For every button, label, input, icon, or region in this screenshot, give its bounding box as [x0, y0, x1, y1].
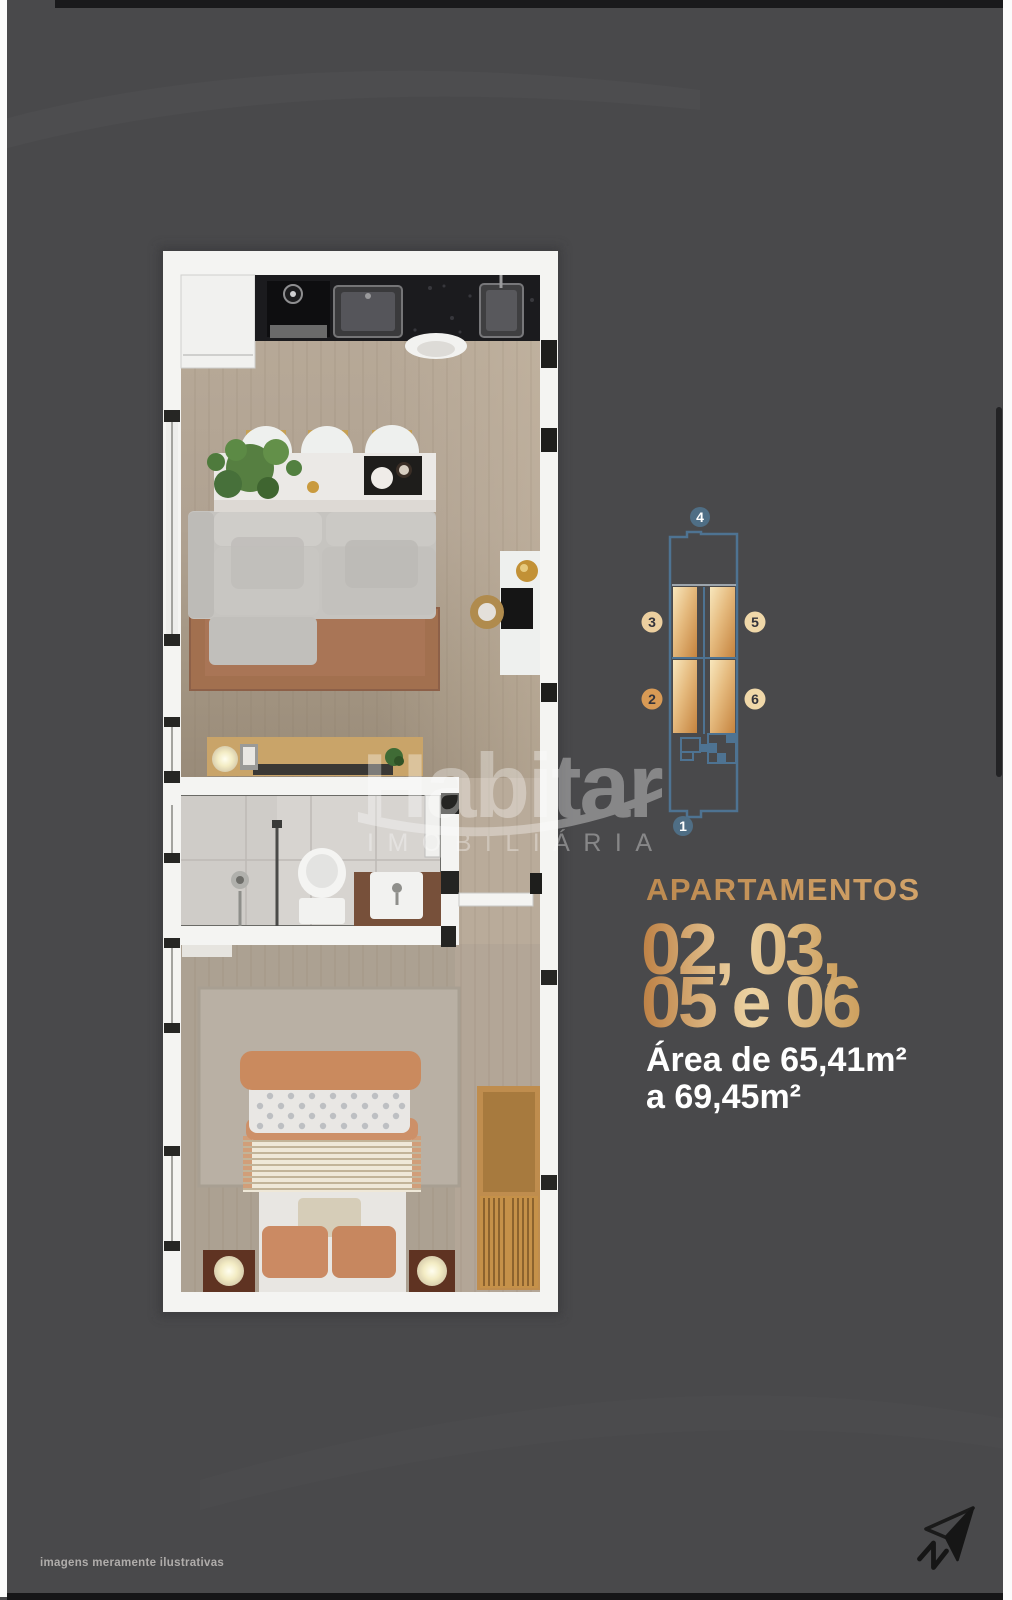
svg-text:Habitar: Habitar: [362, 736, 663, 837]
svg-text:a 69,45m²: a 69,45m²: [646, 1078, 801, 1116]
svg-text:imagens meramente ilustrativas: imagens meramente ilustrativas: [40, 1557, 224, 1569]
svg-text:1: 1: [679, 818, 687, 834]
svg-text:APARTAMENTOS: APARTAMENTOS: [646, 872, 921, 907]
svg-text:Área de 65,41m²: Área de 65,41m²: [646, 1041, 907, 1079]
svg-text:4: 4: [696, 509, 704, 525]
svg-text:05 e 06: 05 e 06: [641, 963, 860, 1043]
svg-text:5: 5: [751, 614, 759, 630]
svg-text:3: 3: [648, 614, 656, 630]
svg-text:IMOBILIÁRIA: IMOBILIÁRIA: [367, 828, 666, 857]
svg-text:6: 6: [751, 691, 759, 707]
svg-text:2: 2: [648, 691, 656, 707]
